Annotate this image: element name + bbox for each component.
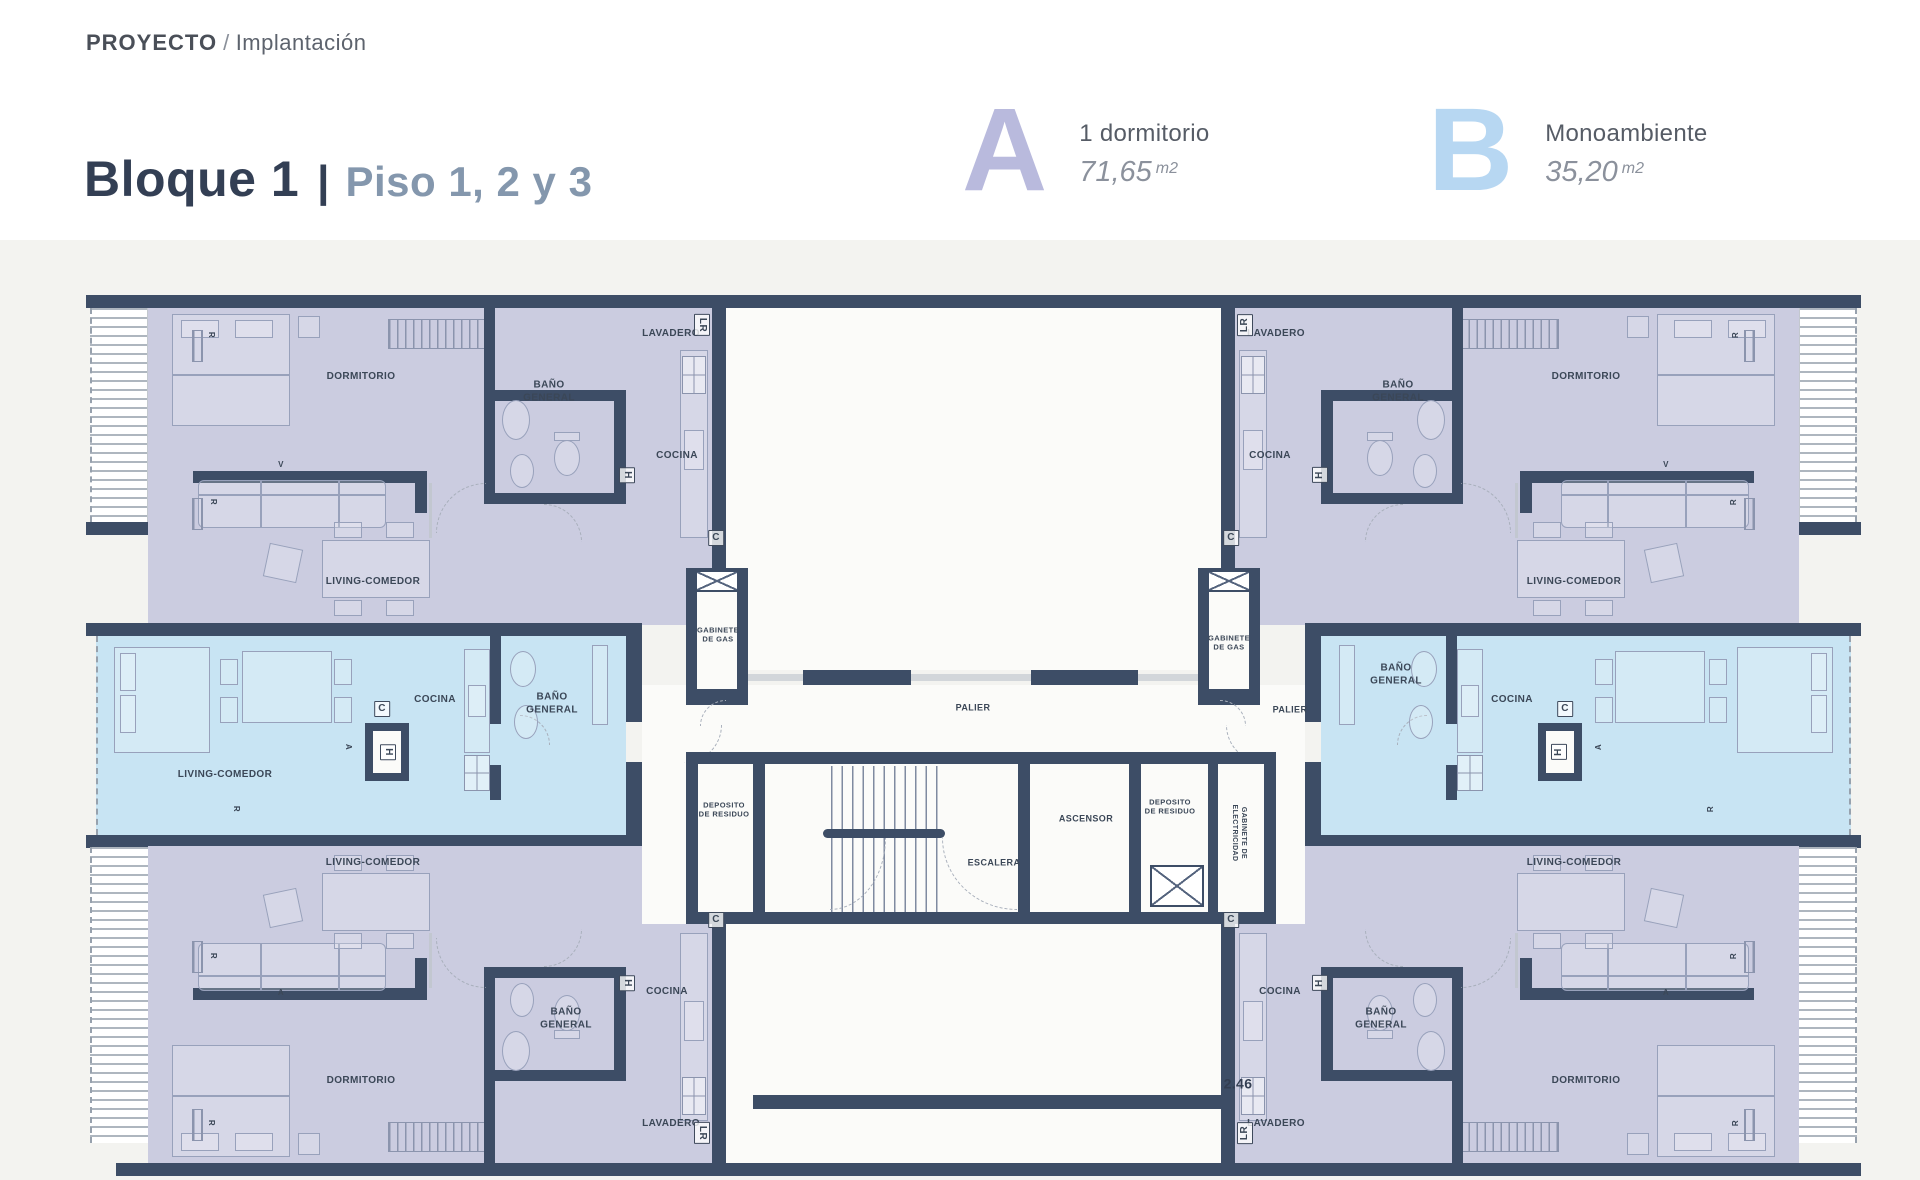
breadcrumb-section: Implantación [236, 30, 367, 55]
unit-a-area: 71,65m2 [1079, 156, 1209, 189]
plan-label-lr: LR [1237, 314, 1253, 336]
plan-label-cocina: COCINA [656, 450, 698, 463]
page-title: Bloque 1 | Piso 1, 2 y 3 [84, 150, 592, 208]
plan-label-ba-o-general: BAÑO GENERAL [1370, 663, 1422, 688]
plan-label-r: R [208, 953, 218, 959]
plan-label-r: R [1729, 953, 1739, 959]
plan-label-v: V [278, 460, 284, 470]
plan-label-living-comedor: LIVING-COMEDOR [178, 769, 273, 782]
plan-label-a: A [278, 988, 284, 998]
floor-plan: LAVADERODORMITORIOBAÑO GENERALCOCINALIVI… [86, 295, 1861, 1176]
plan-label-lavadero: LAVADERO [642, 1118, 700, 1131]
plan-label-r: R [1731, 332, 1741, 338]
unit-b-area-unit: m2 [1622, 160, 1644, 177]
plan-label-cocina: COCINA [1249, 450, 1291, 463]
plan-label-dormitorio: DORMITORIO [1552, 371, 1621, 384]
plan-label-cocina: COCINA [1491, 694, 1533, 707]
plan-label-h: H [619, 467, 635, 483]
plan-label-lr: LR [694, 314, 710, 336]
plan-label-gabinete-de-gas: GABINETE DE GAS [1208, 634, 1250, 653]
plan-label-ba-o-general: BAÑO GENERAL [523, 380, 575, 405]
plan-label-ascensor: ASCENSOR [1059, 813, 1113, 824]
unit-a-area-unit: m2 [1156, 160, 1178, 177]
plan-label-ba-o-general: BAÑO GENERAL [526, 692, 578, 717]
plan-label-deposito-de-residuo: DEPOSITO DE RESIDUO [699, 801, 750, 820]
plan-label-living-comedor: LIVING-COMEDOR [1527, 576, 1622, 589]
unit-b-area-value: 35,20 [1545, 156, 1618, 188]
block-title: Bloque 1 [84, 150, 299, 208]
plan-label-ba-o-general: BAÑO GENERAL [1355, 1007, 1407, 1032]
plan-label-dormitorio: DORMITORIO [327, 371, 396, 384]
breadcrumb: PROYECTO/Implantación [86, 30, 366, 56]
plan-label-h: H [1312, 467, 1328, 483]
plan-label-h: H [1551, 744, 1567, 760]
plan-label-r: R [208, 499, 218, 505]
unit-a-area-value: 71,65 [1079, 156, 1152, 188]
plan-label-c: C [708, 530, 724, 546]
plan-label-cocina: COCINA [414, 694, 456, 707]
legend-unit-b: B Monoambiente 35,20m2 [1428, 98, 1708, 202]
plan-label-h: H [619, 975, 635, 991]
plan-label-c: C [374, 701, 390, 717]
plan-label-h: H [1312, 975, 1328, 991]
plan-label-v: V [1663, 460, 1669, 470]
plan-label-deposito-de-residuo: DEPOSITO DE RESIDUO [1145, 798, 1196, 817]
plan-label-ba-o-general: BAÑO GENERAL [540, 1007, 592, 1032]
unit-b-area: 35,20m2 [1545, 156, 1707, 189]
plan-label-ba-o-general: BAÑO GENERAL [1372, 380, 1424, 405]
unit-a-letter: A [962, 98, 1047, 202]
plan-label-lavadero: LAVADERO [642, 328, 700, 341]
plan-label-palier: PALIER [956, 702, 991, 713]
unit-b-letter: B [1428, 98, 1513, 202]
plan-label-c: C [708, 912, 724, 928]
plan-label-lavadero: LAVADERO [1247, 1118, 1305, 1131]
plan-label-a: A [1663, 988, 1669, 998]
plan-label-living-comedor: LIVING-COMEDOR [326, 576, 421, 589]
plan-label-a: A [343, 744, 353, 750]
plan-label-living-comedor: LIVING-COMEDOR [1527, 857, 1622, 870]
plan-label-layer: LAVADERODORMITORIOBAÑO GENERALCOCINALIVI… [86, 295, 1861, 1176]
plan-label-dormitorio: DORMITORIO [1552, 1075, 1621, 1088]
unit-b-type: Monoambiente [1545, 120, 1707, 148]
plan-label-r: R [231, 806, 241, 812]
plan-label-c: C [1223, 530, 1239, 546]
plan-label-r: R [206, 332, 216, 338]
plan-label-dormitorio: DORMITORIO [327, 1075, 396, 1088]
plan-label-gabinete-de-electricidad: GABINETE DE ELECTRICIDAD [1229, 805, 1247, 862]
breadcrumb-separator: / [223, 30, 230, 55]
plan-label-r: R [206, 1120, 216, 1126]
legend-unit-a: A 1 dormitorio 71,65m2 [962, 98, 1210, 202]
plan-label-cocina: COCINA [646, 986, 688, 999]
plan-label-cocina: COCINA [1259, 986, 1301, 999]
plan-label-h: H [380, 744, 396, 760]
plan-label-2-46: 2.46 [1224, 1075, 1253, 1093]
plan-label-a: A [1594, 744, 1604, 750]
plan-label-r: R [1731, 1120, 1741, 1126]
plan-label-c: C [1223, 912, 1239, 928]
plan-label-living-comedor: LIVING-COMEDOR [326, 857, 421, 870]
breadcrumb-project: PROYECTO [86, 30, 217, 55]
plan-label-gabinete-de-gas: GABINETE DE GAS [697, 626, 739, 645]
plan-label-lr: LR [694, 1122, 710, 1144]
plan-label-lavadero: LAVADERO [1247, 328, 1305, 341]
plan-label-palier: PALIER [1273, 704, 1308, 715]
unit-a-type: 1 dormitorio [1079, 120, 1209, 148]
floors-subtitle: Piso 1, 2 y 3 [345, 158, 592, 206]
plan-label-c: C [1557, 701, 1573, 717]
plan-label-r: R [1729, 499, 1739, 505]
unit-a-text: 1 dormitorio 71,65m2 [1079, 98, 1209, 189]
plan-label-r: R [1706, 806, 1716, 812]
unit-b-text: Monoambiente 35,20m2 [1545, 98, 1707, 189]
title-divider: | [317, 157, 329, 207]
plan-label-escalera: ESCALERA [968, 857, 1021, 868]
plan-label-lr: LR [1237, 1122, 1253, 1144]
